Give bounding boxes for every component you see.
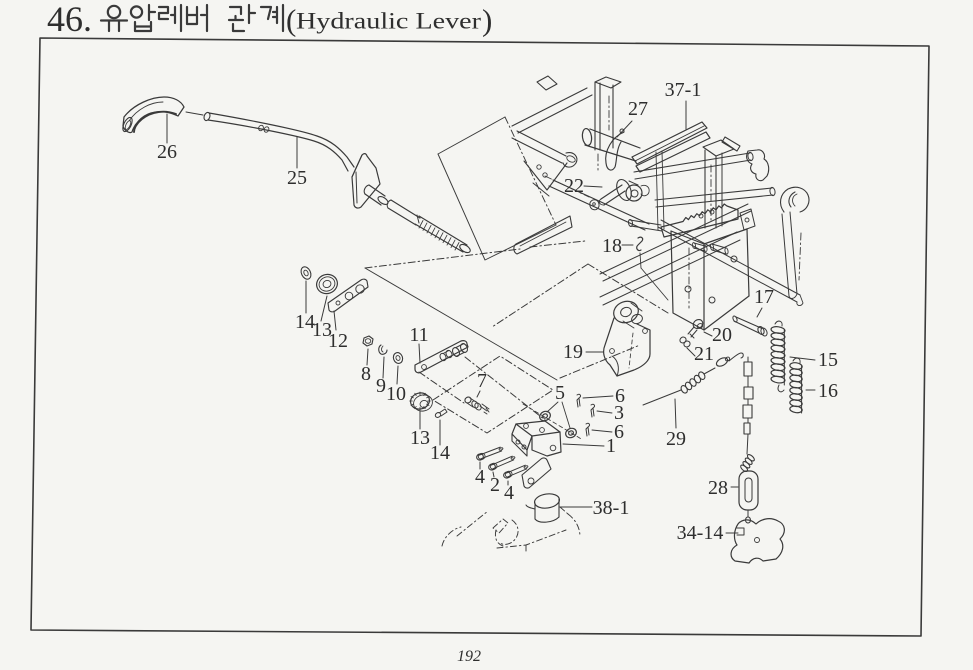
svg-text:21: 21 bbox=[694, 343, 714, 365]
svg-text:37-1: 37-1 bbox=[665, 79, 702, 101]
svg-text:4: 4 bbox=[504, 482, 514, 504]
svg-text:192: 192 bbox=[457, 648, 481, 665]
svg-text:29: 29 bbox=[666, 428, 686, 450]
svg-text:25: 25 bbox=[287, 167, 307, 189]
svg-text:9: 9 bbox=[376, 375, 386, 397]
svg-text:27: 27 bbox=[628, 98, 648, 120]
svg-text:Hydraulic Lever: Hydraulic Lever bbox=[296, 9, 481, 35]
svg-text:5: 5 bbox=[555, 382, 565, 404]
svg-text:18: 18 bbox=[602, 235, 622, 257]
svg-text:20: 20 bbox=[712, 324, 732, 346]
svg-text:16: 16 bbox=[818, 380, 838, 402]
svg-text:6: 6 bbox=[614, 421, 624, 443]
svg-text:46.: 46. bbox=[47, 0, 92, 39]
svg-text:34-14: 34-14 bbox=[677, 522, 724, 544]
svg-text:26: 26 bbox=[157, 141, 177, 163]
svg-text:8: 8 bbox=[361, 363, 371, 385]
svg-text:7: 7 bbox=[477, 370, 487, 392]
svg-text:12: 12 bbox=[328, 330, 348, 352]
svg-text:19: 19 bbox=[563, 341, 583, 363]
svg-text:): ) bbox=[482, 3, 492, 38]
svg-text:38-1: 38-1 bbox=[593, 497, 630, 519]
svg-text:28: 28 bbox=[708, 477, 728, 499]
svg-text:2: 2 bbox=[490, 474, 500, 496]
svg-text:13: 13 bbox=[410, 427, 430, 449]
svg-text:11: 11 bbox=[409, 324, 428, 346]
svg-text:10: 10 bbox=[386, 383, 406, 405]
svg-text:(: ( bbox=[286, 3, 296, 38]
svg-text:15: 15 bbox=[818, 349, 838, 371]
svg-text:22: 22 bbox=[564, 175, 584, 197]
svg-text:17: 17 bbox=[754, 286, 774, 308]
